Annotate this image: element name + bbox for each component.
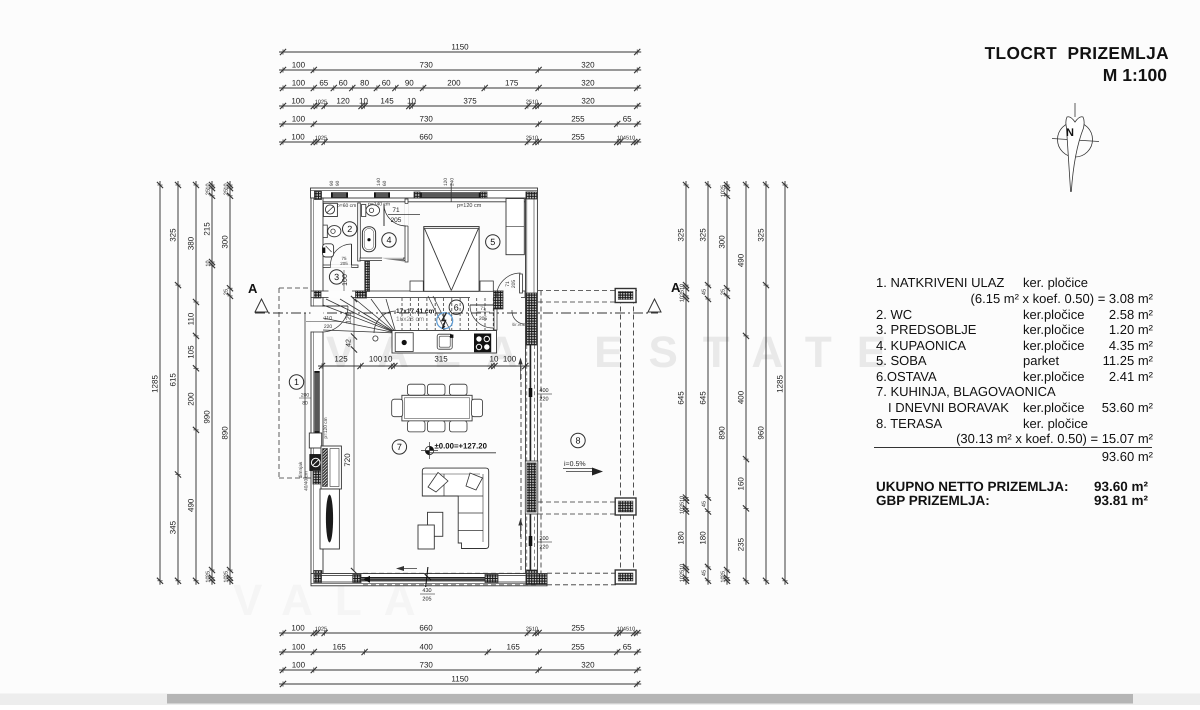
svg-text:990: 990	[203, 410, 212, 424]
svg-text:71: 71	[392, 207, 400, 214]
svg-text:60: 60	[382, 180, 388, 186]
svg-text:42: 42	[346, 339, 353, 347]
svg-text:1025: 1025	[315, 627, 327, 633]
svg-text:10: 10	[490, 355, 499, 364]
svg-text:TLOCRT PRIZEMLJA: TLOCRT PRIZEMLJA	[985, 43, 1170, 63]
svg-text:205: 205	[511, 280, 517, 289]
svg-text:ker.pločice: ker.pločice	[1023, 369, 1084, 384]
svg-text:100: 100	[292, 661, 306, 670]
svg-text:dimnjak: dimnjak	[298, 461, 304, 478]
svg-text:65: 65	[623, 643, 632, 652]
svg-text:100: 100	[291, 97, 305, 106]
svg-text:645: 645	[677, 391, 686, 405]
svg-text:10: 10	[206, 260, 212, 266]
svg-text:1025: 1025	[315, 136, 327, 142]
svg-text:220: 220	[324, 324, 333, 330]
svg-text:45: 45	[702, 501, 708, 507]
svg-text:1: 1	[294, 377, 299, 387]
svg-text:1150: 1150	[451, 43, 469, 52]
svg-text:325: 325	[757, 228, 766, 242]
svg-text:235: 235	[737, 537, 746, 551]
svg-text:80: 80	[302, 401, 308, 407]
svg-text:165: 165	[333, 643, 347, 652]
svg-text:102510: 102510	[680, 284, 686, 302]
svg-text:25: 25	[206, 571, 212, 577]
svg-text:7. KUHINJA, BLAGOVAONICA: 7. KUHINJA, BLAGOVAONICA	[876, 384, 1056, 399]
svg-text:730: 730	[420, 61, 434, 70]
svg-text:1. NATKRIVENI ULAZ: 1. NATKRIVENI ULAZ	[876, 275, 1004, 290]
svg-text:100: 100	[292, 643, 306, 652]
svg-text:ker. pločice: ker. pločice	[1023, 275, 1088, 290]
svg-text:430: 430	[422, 588, 431, 594]
svg-text:80: 80	[360, 79, 369, 88]
svg-text:615: 615	[169, 373, 178, 387]
svg-text:10: 10	[384, 355, 393, 364]
svg-text:100: 100	[503, 355, 517, 364]
svg-text:175: 175	[505, 79, 519, 88]
svg-text:90: 90	[335, 180, 341, 186]
svg-text:parket: parket	[1023, 353, 1060, 368]
svg-text:100: 100	[292, 61, 306, 70]
svg-text:105: 105	[187, 345, 196, 359]
svg-text:(30.13 m² x koef. 0.50) = 15.0: (30.13 m² x koef. 0.50) = 15.07 m²	[956, 431, 1154, 446]
svg-text:10: 10	[206, 183, 212, 189]
svg-text:53.60 m²: 53.60 m²	[1102, 400, 1154, 415]
svg-text:100: 100	[291, 133, 305, 142]
svg-text:I DNEVNI BORAVAK: I DNEVNI BORAVAK	[888, 400, 1009, 415]
svg-text:255: 255	[571, 643, 585, 652]
svg-text:490: 490	[187, 498, 196, 512]
svg-text:4: 4	[386, 235, 391, 245]
svg-text:320: 320	[581, 661, 595, 670]
svg-text:325: 325	[699, 228, 708, 242]
svg-text:5: 5	[490, 237, 495, 247]
svg-text:p=140 cm: p=140 cm	[368, 202, 390, 208]
svg-text:1025: 1025	[721, 185, 727, 197]
svg-text:325: 325	[169, 228, 178, 242]
svg-text:375: 375	[463, 97, 477, 106]
svg-text:ker.pločice: ker.pločice	[1023, 307, 1084, 322]
svg-text:25: 25	[224, 289, 230, 295]
svg-text:145: 145	[380, 97, 394, 106]
svg-text:10: 10	[721, 576, 727, 582]
svg-text:180: 180	[677, 531, 686, 545]
svg-text:25: 25	[224, 189, 230, 195]
svg-text:104510: 104510	[617, 627, 635, 633]
svg-text:10: 10	[224, 183, 230, 189]
svg-text:90: 90	[405, 79, 414, 88]
svg-text:4.35 m²: 4.35 m²	[1109, 338, 1154, 353]
svg-text:8. TERASA: 8. TERASA	[876, 416, 943, 431]
svg-text:ker. pločice: ker. pločice	[1023, 416, 1088, 431]
svg-text:ker.pločice: ker.pločice	[1023, 338, 1084, 353]
svg-text:2.58 m²: 2.58 m²	[1109, 307, 1154, 322]
svg-text:345: 345	[169, 520, 178, 534]
svg-text:320: 320	[581, 61, 595, 70]
svg-text:720: 720	[343, 453, 352, 467]
svg-text:102510: 102510	[680, 564, 686, 582]
svg-text:120: 120	[346, 312, 353, 324]
svg-text:93.60 m²: 93.60 m²	[1094, 479, 1149, 494]
svg-text:1.20 m²: 1.20 m²	[1109, 322, 1154, 337]
svg-text:6.OSTAVA: 6.OSTAVA	[876, 369, 937, 384]
svg-text:300: 300	[221, 235, 230, 249]
svg-text:90: 90	[329, 180, 335, 186]
svg-text:25: 25	[206, 189, 212, 195]
svg-text:104510: 104510	[617, 136, 635, 142]
svg-text:šir.vrata 20: šir.vrata 20	[512, 322, 535, 327]
svg-text:4. KUPAONICA: 4. KUPAONICA	[876, 338, 966, 353]
svg-text:220: 220	[539, 545, 548, 551]
svg-text:93.81 m²: 93.81 m²	[1094, 493, 1149, 508]
svg-text:400: 400	[420, 643, 434, 652]
svg-text:200: 200	[539, 536, 548, 542]
svg-text:10: 10	[359, 97, 368, 106]
svg-text:p=120 cm: p=120 cm	[457, 203, 482, 209]
svg-text:7: 7	[397, 442, 402, 452]
svg-text:ker.pločice: ker.pločice	[1023, 322, 1084, 337]
svg-text:160: 160	[737, 477, 746, 491]
svg-text:215: 215	[203, 222, 212, 236]
svg-text:10: 10	[407, 97, 416, 106]
svg-text:140: 140	[376, 178, 382, 186]
svg-text:300: 300	[718, 235, 727, 249]
svg-text:890: 890	[221, 426, 230, 440]
svg-text:ker.pločice: ker.pločice	[1023, 400, 1084, 415]
svg-text:2.41 m²: 2.41 m²	[1109, 369, 1154, 384]
svg-text:120: 120	[443, 178, 449, 186]
svg-text:102510: 102510	[680, 496, 686, 514]
svg-text:p=60 cm: p=60 cm	[337, 203, 356, 209]
svg-text:2: 2	[347, 224, 352, 234]
svg-text:400: 400	[737, 390, 746, 404]
svg-text:660: 660	[419, 624, 433, 633]
svg-text:25: 25	[721, 571, 727, 577]
svg-text:255: 255	[571, 624, 585, 633]
svg-text:320: 320	[581, 79, 595, 88]
svg-text:1025: 1025	[315, 100, 327, 106]
svg-text:255: 255	[571, 115, 585, 124]
svg-text:205: 205	[340, 261, 348, 266]
svg-text:730: 730	[420, 661, 434, 670]
svg-text:2510: 2510	[526, 100, 538, 106]
svg-text:960: 960	[757, 426, 766, 440]
svg-text:1150: 1150	[451, 675, 469, 684]
svg-text:325: 325	[677, 228, 686, 242]
svg-text:380: 380	[187, 236, 196, 250]
svg-text:2510: 2510	[526, 136, 538, 142]
svg-text:i=0.5%: i=0.5%	[564, 460, 586, 468]
svg-text:60: 60	[382, 79, 391, 88]
svg-text:205: 205	[479, 316, 488, 322]
svg-text:(6.15 m² x koef. 0.50) = 3.08: (6.15 m² x koef. 0.50) = 3.08 m²	[971, 291, 1154, 306]
svg-text:16x28 cm: 16x28 cm	[396, 316, 424, 323]
svg-text:GBP PRIZEMLJA:: GBP PRIZEMLJA:	[876, 493, 990, 508]
svg-text:10: 10	[224, 576, 230, 582]
svg-text:93.60 m²: 93.60 m²	[1102, 449, 1154, 464]
svg-text:660: 660	[419, 133, 433, 142]
svg-text:1285: 1285	[776, 375, 785, 393]
svg-text:8: 8	[575, 436, 580, 446]
svg-text:25: 25	[224, 571, 230, 577]
svg-text:65: 65	[623, 115, 632, 124]
svg-text:11.25 m²: 11.25 m²	[1103, 353, 1154, 368]
svg-text:M 1:100: M 1:100	[1103, 65, 1167, 85]
svg-text:490: 490	[737, 253, 746, 267]
svg-text:205: 205	[391, 217, 402, 224]
svg-text:200: 200	[187, 392, 196, 406]
svg-text:400: 400	[539, 388, 548, 394]
svg-text:25: 25	[721, 289, 727, 295]
svg-text:UKUPNO NETTO PRIZEMLJA:: UKUPNO NETTO PRIZEMLJA:	[876, 479, 1069, 494]
svg-text:180: 180	[699, 531, 708, 545]
svg-text:1285: 1285	[151, 375, 160, 393]
svg-text:5. SOBA: 5. SOBA	[876, 353, 927, 368]
svg-text:730: 730	[420, 115, 434, 124]
svg-text:2. WC: 2. WC	[876, 307, 912, 322]
svg-text:60: 60	[339, 79, 348, 88]
svg-text:2510: 2510	[526, 627, 538, 633]
svg-text:255: 255	[571, 133, 585, 142]
svg-text:3. PREDSOBLJE: 3. PREDSOBLJE	[876, 322, 977, 337]
svg-text:240: 240	[450, 178, 456, 186]
svg-text:17x17,41 cm: 17x17,41 cm	[396, 308, 435, 315]
svg-text:100: 100	[292, 115, 306, 124]
svg-text:45: 45	[702, 570, 708, 576]
svg-text:65: 65	[319, 79, 328, 88]
svg-text:165: 165	[507, 643, 521, 652]
svg-text:110: 110	[324, 316, 332, 322]
svg-text:71: 71	[480, 306, 486, 312]
svg-text:100: 100	[292, 79, 306, 88]
svg-text:±0.00=+127.20: ±0.00=+127.20	[435, 442, 488, 451]
svg-text:110: 110	[187, 312, 196, 325]
svg-text:205: 205	[422, 597, 431, 603]
svg-text:890: 890	[718, 426, 727, 440]
svg-text:100: 100	[291, 624, 305, 633]
svg-text:200: 200	[301, 393, 310, 399]
svg-text:125: 125	[334, 355, 348, 364]
svg-text:A: A	[671, 280, 681, 295]
svg-text:315: 315	[434, 355, 448, 364]
svg-text:645: 645	[699, 391, 708, 405]
svg-text:220: 220	[539, 397, 548, 403]
svg-text:p=120 cm: p=120 cm	[323, 417, 329, 438]
svg-text:10: 10	[206, 576, 212, 582]
svg-text:40/40 cm: 40/40 cm	[304, 471, 310, 491]
svg-text:320: 320	[581, 97, 595, 106]
svg-text:A: A	[248, 281, 258, 296]
svg-text:120: 120	[336, 97, 350, 106]
svg-text:3: 3	[334, 272, 339, 282]
svg-text:100: 100	[369, 355, 383, 364]
svg-text:45: 45	[702, 289, 708, 295]
svg-text:6: 6	[454, 302, 459, 312]
svg-text:200: 200	[447, 79, 461, 88]
svg-text:N: N	[1066, 127, 1074, 139]
